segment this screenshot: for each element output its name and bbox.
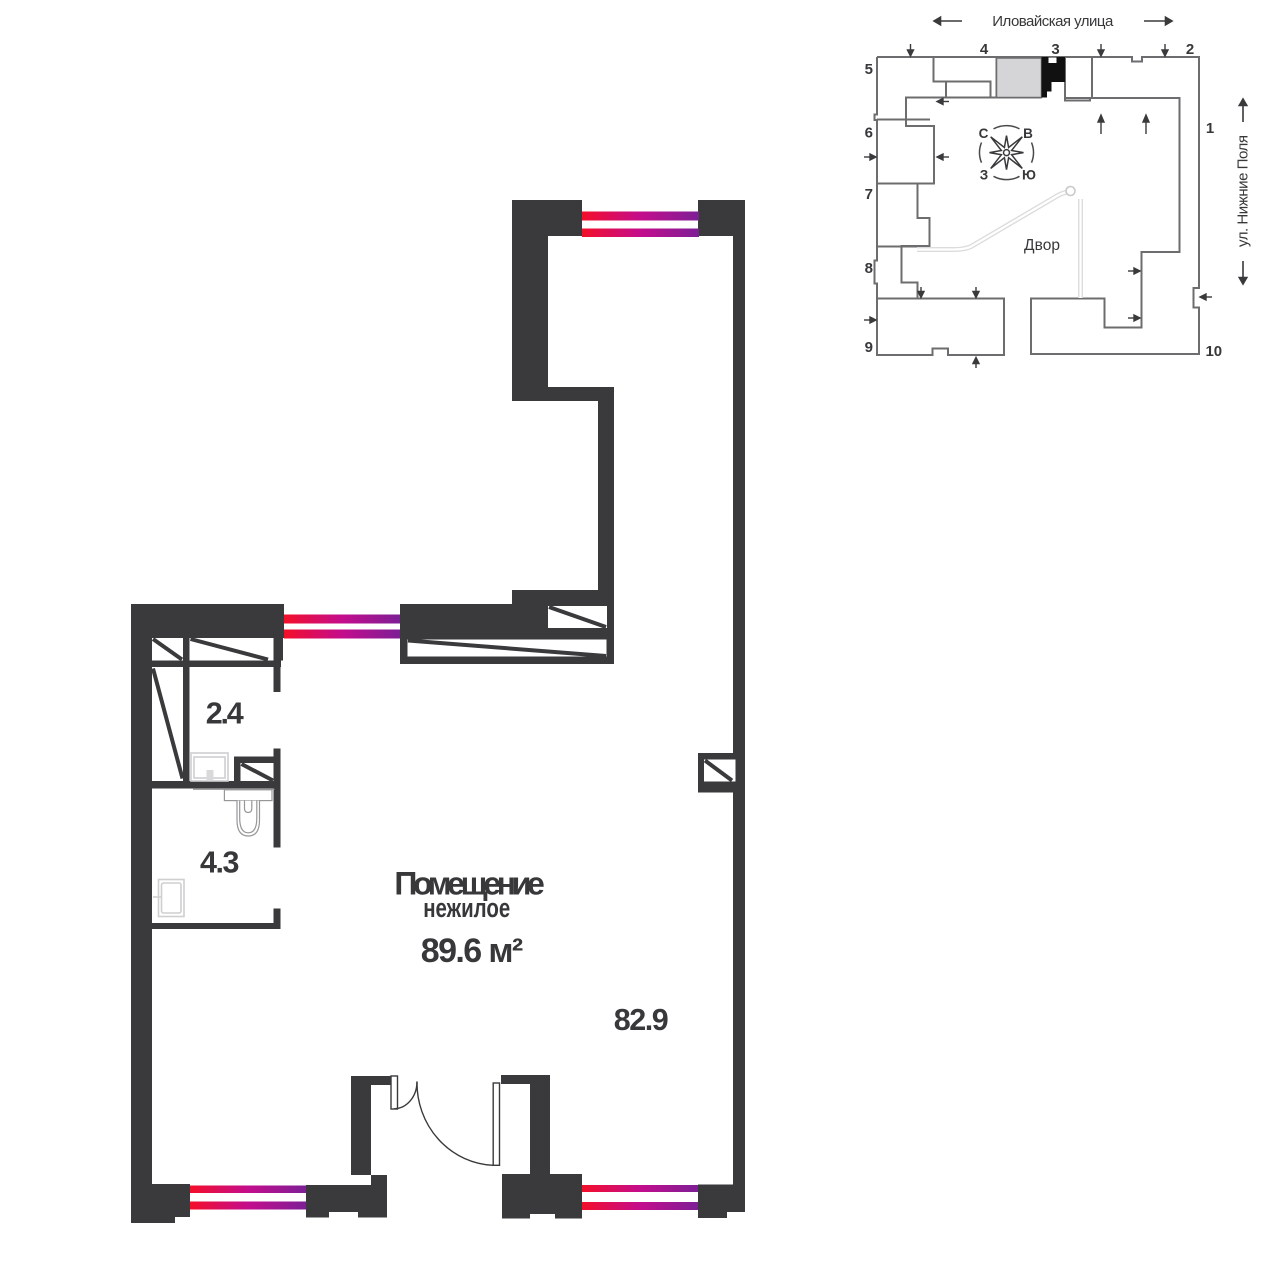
svg-text:Иловайская улица: Иловайская улица — [992, 13, 1114, 30]
svg-text:6: 6 — [865, 125, 873, 142]
svg-text:7: 7 — [865, 186, 873, 203]
svg-text:ул. Нижние Поля: ул. Нижние Поля — [1235, 135, 1252, 247]
svg-text:5: 5 — [865, 61, 873, 78]
svg-text:Ю: Ю — [1022, 168, 1036, 183]
svg-text:Двор: Двор — [1024, 237, 1060, 254]
svg-text:8: 8 — [865, 260, 873, 277]
svg-text:10: 10 — [1205, 343, 1222, 360]
svg-text:4: 4 — [980, 41, 989, 58]
svg-text:1: 1 — [1206, 120, 1214, 137]
svg-text:З: З — [980, 168, 988, 183]
svg-text:2.4: 2.4 — [206, 697, 244, 731]
svg-text:нежилое: нежилое — [423, 893, 510, 923]
svg-text:82.9: 82.9 — [614, 1003, 669, 1037]
svg-text:В: В — [1023, 126, 1033, 141]
svg-text:С: С — [979, 126, 989, 141]
svg-text:4.3: 4.3 — [200, 846, 240, 880]
svg-text:89.6 м²: 89.6 м² — [421, 932, 524, 970]
svg-text:3: 3 — [1051, 41, 1059, 58]
svg-text:9: 9 — [865, 339, 873, 356]
svg-text:2: 2 — [1186, 41, 1194, 58]
